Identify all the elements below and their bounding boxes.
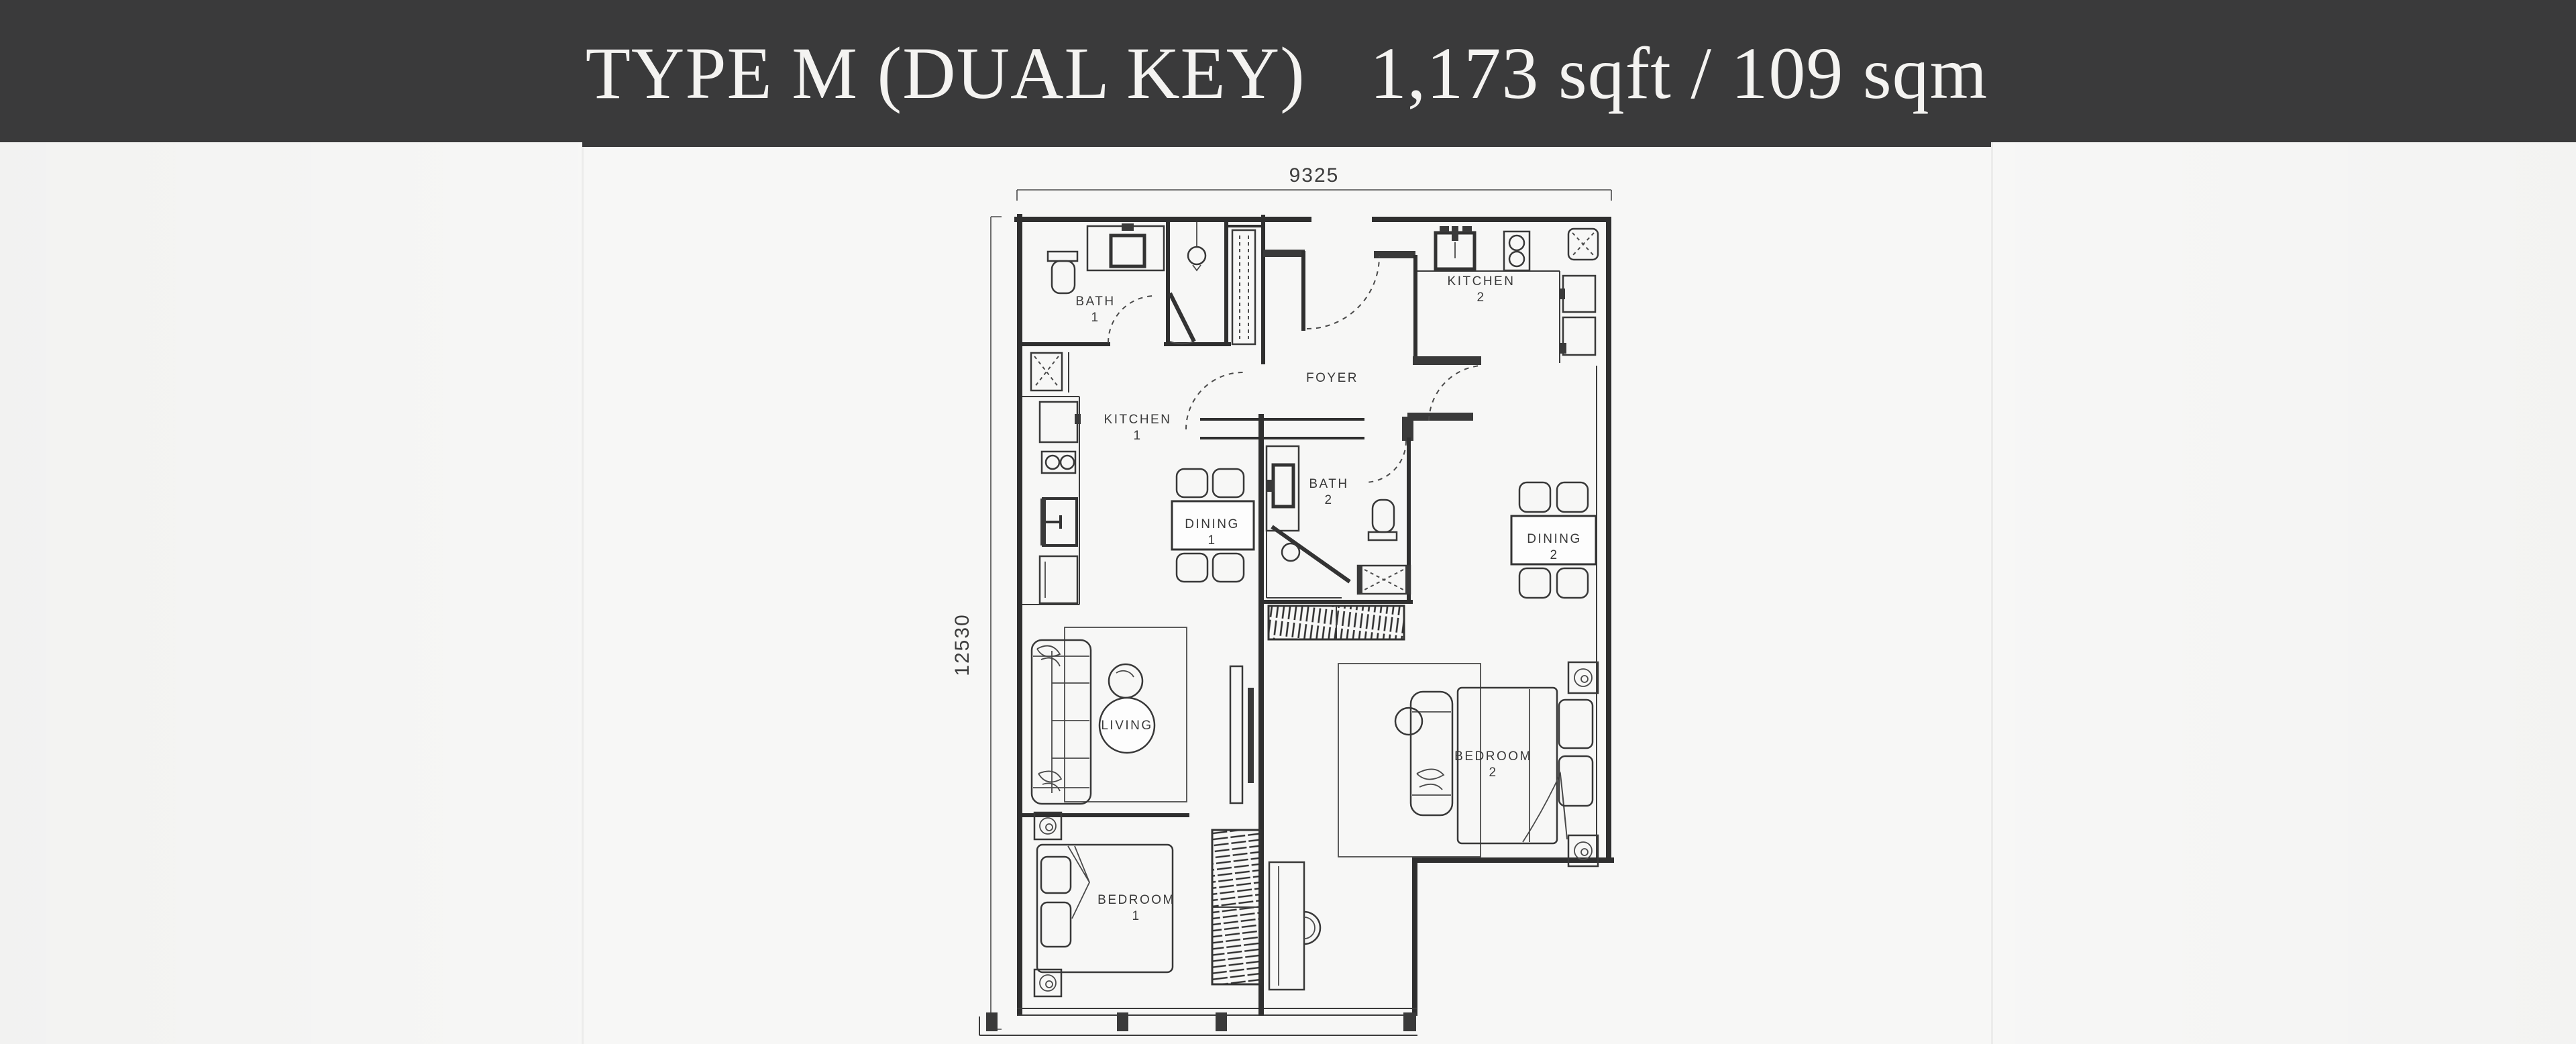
vanity-bath-2	[1267, 446, 1299, 531]
washer-kitchen-1	[1031, 352, 1069, 393]
sink-kitchen-2	[1436, 226, 1474, 269]
chair	[1557, 568, 1588, 598]
chair	[1213, 469, 1244, 497]
floor-plan: 9325 12530	[899, 151, 1664, 1044]
shower-bath-2	[1267, 527, 1410, 598]
chair	[1177, 469, 1207, 497]
room-label-bath-2: BATH	[1309, 477, 1348, 491]
pillow	[1041, 857, 1071, 893]
room-label-dining-2: DINING	[1527, 532, 1582, 546]
room-number-kitchen-1: 1	[1133, 429, 1142, 443]
floor-plan-drawing: 9325 12530	[899, 151, 1664, 1044]
round-cushion	[1395, 708, 1422, 735]
chair	[1177, 554, 1207, 582]
vanity-bath-1	[1087, 223, 1164, 270]
stove-kitchen-1	[1042, 452, 1075, 473]
dining-1: DINING 1	[1172, 469, 1254, 582]
bedroom-2: BEDROOM 2	[1338, 662, 1598, 866]
tv-console	[1230, 666, 1254, 803]
room-label-living: LIVING	[1101, 719, 1152, 733]
dimension-depth-label: 12530	[951, 613, 973, 676]
fold-seam-right	[1991, 0, 1993, 1044]
fold-seam-left	[582, 0, 584, 1044]
room-label-kitchen-2: KITCHEN	[1448, 274, 1515, 289]
cabinet-kitchen-1	[1040, 556, 1077, 603]
store-room	[1170, 222, 1205, 344]
dimension-width-label: 9325	[1289, 164, 1340, 187]
room-label-dining-1: DINING	[1185, 517, 1240, 531]
chair	[1213, 554, 1244, 582]
plan-title-box: TYPE M (DUAL KEY) 1,173 sqft / 109 sqm	[582, 0, 1991, 147]
room-label-foyer: FOYER	[1306, 371, 1358, 385]
room-number-dining-2: 2	[1550, 548, 1558, 562]
dimension-left: 12530	[951, 217, 1002, 1029]
bedside-unit-icon	[1568, 662, 1598, 693]
room-number-bedroom-1: 1	[1132, 909, 1140, 923]
kitchen-1: KITCHEN 1	[1022, 352, 1171, 605]
headboard-cushion	[1559, 756, 1593, 806]
room-number-bath-2: 2	[1324, 493, 1333, 507]
pendant-light-icon	[1188, 247, 1205, 264]
dining-2: DINING 2	[1511, 482, 1596, 598]
plan-area: 1,173 sqft / 109 sqm	[1370, 31, 1988, 116]
bed-bedroom-1	[1037, 845, 1173, 972]
room-number-kitchen-2: 2	[1477, 291, 1485, 305]
chair	[1519, 482, 1550, 512]
sink-kitchen-1	[1040, 499, 1077, 545]
bench-bedroom-2	[1395, 692, 1452, 815]
bedroom-1: BEDROOM 1	[1034, 813, 1260, 996]
room-label-bath-1: BATH	[1075, 295, 1115, 309]
wardrobe-bedroom-1	[1212, 830, 1260, 984]
floorplan-page: { "header": { "title": "TYPE M (DUAL KEY…	[0, 0, 2576, 1044]
desk-chair	[1304, 912, 1320, 944]
plan-title: TYPE M (DUAL KEY)	[586, 31, 1305, 116]
foyer-closet	[1232, 230, 1255, 344]
desk	[1269, 862, 1304, 990]
headboard-cushion	[1559, 700, 1593, 748]
room-label-bedroom-2: BEDROOM	[1454, 749, 1532, 764]
living-room: LIVING	[1032, 627, 1254, 804]
toilet-bath-2	[1368, 500, 1397, 540]
kitchen-2: KITCHEN 2	[1417, 226, 1598, 363]
hall-wardrobe	[1269, 606, 1404, 639]
appliance-kitchen-2	[1568, 229, 1598, 260]
bed-bedroom-2	[1458, 688, 1593, 843]
study-nook	[1269, 862, 1320, 990]
bedside-unit-icon	[1034, 970, 1061, 996]
room-number-bath-1: 1	[1091, 311, 1099, 325]
toilet-bath-1	[1048, 252, 1077, 293]
store-door	[1170, 293, 1194, 342]
chair	[1557, 482, 1588, 512]
room-number-dining-1: 1	[1207, 533, 1216, 547]
bath-2: BATH 2	[1267, 446, 1410, 598]
pillow	[1041, 902, 1071, 947]
room-label-bedroom-1: BEDROOM	[1097, 893, 1175, 907]
room-number-bedroom-2: 2	[1489, 766, 1497, 780]
door-swings	[1108, 256, 1480, 482]
sofa	[1032, 640, 1091, 804]
dimension-top: 9325	[1017, 164, 1611, 201]
chair	[1519, 568, 1550, 598]
bath-1: BATH 1	[1048, 223, 1164, 325]
room-label-kitchen-1: KITCHEN	[1104, 413, 1172, 427]
cabinets-kitchen-2	[1560, 276, 1595, 355]
coffee-tables	[1099, 664, 1155, 753]
stove-kitchen-2	[1504, 231, 1529, 270]
fridge-kitchen-1	[1040, 402, 1081, 442]
